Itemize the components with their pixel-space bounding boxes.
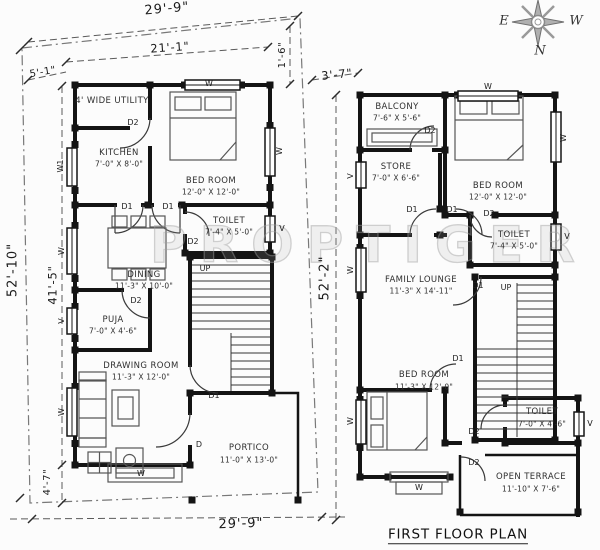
room-label-puja: PUJA <box>102 316 123 325</box>
window-label-w-porch: W <box>137 470 145 478</box>
room-size-toilet-gf: 7'-4" X 5'-0" <box>205 228 253 236</box>
room-label-toilet-gf: TOILET <box>213 217 245 226</box>
window-label-w-bedroom-top: W <box>205 80 213 88</box>
room-label-open-terrace: OPEN TERRACE <box>496 473 566 482</box>
window-label-w-bedroom-ff-bottom: W <box>415 484 423 492</box>
room-label-bedroom-ff-bottom: BED ROOM <box>399 371 449 380</box>
room-size-open-terrace: 11'-10" X 7'-6" <box>502 485 560 493</box>
door-tag-d2-balcony: D2 <box>424 127 435 135</box>
door-tag-d1-dining: D1 <box>121 203 132 211</box>
window-label-w-bedroom-ff-right: W <box>560 134 568 142</box>
room-label-toilet-ff-bottom: TOILET <box>526 408 558 417</box>
window-label-w-drawing: W <box>58 408 66 416</box>
door-tag-d1-bedroom: D1 <box>162 203 173 211</box>
room-size-dining: 11'-3" X 10'-0" <box>115 282 173 290</box>
room-size-portico: 11'-0" X 13'-0" <box>220 456 278 464</box>
dim-plot-width-bottom: 29'-9" <box>218 517 263 532</box>
dim-plot-depth-ff: 52'-2" <box>319 255 332 300</box>
window-label-w-bedroom-right: W <box>276 147 284 155</box>
dim-plot-depth-gf: 52'-10" <box>7 243 20 297</box>
room-label-bedroom-gf: BED ROOM <box>186 177 236 186</box>
room-size-kitchen: 7'-0" X 8'-0" <box>95 160 143 168</box>
room-size-bedroom-ff-top: 12'-0" X 12'-0" <box>469 193 527 201</box>
room-size-balcony: 7'-6" X 5'-6" <box>373 114 421 122</box>
dim-house-depth: 41'-5" <box>47 265 59 304</box>
room-size-family-lounge: 11'-3" X 14'-11" <box>390 287 453 295</box>
dim-offset-right: 1'-6" <box>278 42 288 69</box>
room-size-puja: 7'-0" X 4'-6" <box>89 327 137 335</box>
stairs-up-label-ff: UP <box>501 284 512 292</box>
room-label-dining: DINING <box>127 271 160 280</box>
vent-label-v-toilet-ff-top: V <box>564 233 569 241</box>
compass-rose <box>512 0 564 46</box>
door-tag-d-entrance: D <box>196 441 202 449</box>
dim-offset-bottom: 4'-7" <box>43 469 53 496</box>
room-size-drawing: 11'-3" X 12'-0" <box>112 373 170 381</box>
stairs-up-label-gf: UP <box>200 265 211 273</box>
floor-plan-canvas: PROPTIGER 4' WIDE UTILITY KITCHEN 7'-0" … <box>0 0 600 550</box>
door-tag-d1-stairs-gf: D1 <box>208 392 219 400</box>
vent-label-v-store: V <box>347 173 355 178</box>
room-label-kitchen: KITCHEN <box>99 149 139 158</box>
room-size-toilet-ff-top: 7'-4" X 5'-0" <box>490 242 538 250</box>
window-label-w-dining: W <box>58 247 66 255</box>
door-tag-d2-toilet-ff-bottom: D2 <box>468 428 479 436</box>
door-tag-d2-puja: D2 <box>130 297 141 305</box>
plan-title-first-floor: FIRST FLOOR PLAN <box>388 528 528 544</box>
room-label-bedroom-ff-top: BED ROOM <box>473 182 523 191</box>
door-tag-d1-store: D1 <box>406 206 417 214</box>
window-label-w1-kitchen: W1 <box>57 160 65 173</box>
room-label-family-lounge: FAMILY LOUNGE <box>385 276 457 285</box>
door-tag-d2-terrace: D2 <box>468 459 479 467</box>
door-tag-d2-toilet-ff-top: D2 <box>483 210 494 218</box>
room-size-toilet-ff-bottom: 7'-0" X 4'-6" <box>518 420 566 428</box>
room-size-store: 7'-0" X 6'-6" <box>372 174 420 182</box>
compass-east: E <box>499 15 509 28</box>
room-label-store: STORE <box>381 163 412 172</box>
room-label-toilet-ff-top: TOILET <box>498 231 530 240</box>
compass-north: N <box>534 45 545 58</box>
window-label-w-bedroom-ff-left: W <box>347 417 355 425</box>
door-tag-d1-hall: D1 <box>446 206 457 214</box>
room-label-balcony: BALCONY <box>375 103 418 112</box>
room-label-drawing: DRAWING ROOM <box>103 362 178 371</box>
dim-plot-width-top: 29'-9" <box>144 1 190 18</box>
room-size-bedroom-gf: 12'-0" X 12'-0" <box>182 188 240 196</box>
door-tag-d1-bedroom-ff: D1 <box>452 355 463 363</box>
vent-label-v-puja: V <box>58 318 66 323</box>
vent-label-v-toilet-ff-bottom: V <box>587 420 592 428</box>
room-size-bedroom-ff-bottom: 11'-3" X 12'-0" <box>395 383 453 391</box>
door-tag-d2-utility: D2 <box>127 119 138 127</box>
plan-linework <box>0 0 600 550</box>
room-label-portico: PORTICO <box>229 444 269 453</box>
room-label-utility: 4' WIDE UTILITY <box>75 97 149 106</box>
door-tag-d1-stairs-ff: D1 <box>472 282 483 290</box>
vent-label-v-toilet-gf: V <box>279 225 284 233</box>
window-label-w-lounge: W <box>347 266 355 274</box>
dim-house-width: 21'-1" <box>150 41 190 55</box>
compass-west: W <box>569 15 582 28</box>
window-label-w-bedroom-ff-top: W <box>484 83 492 91</box>
door-tag-d2-toilet-gf: D2 <box>187 238 198 246</box>
